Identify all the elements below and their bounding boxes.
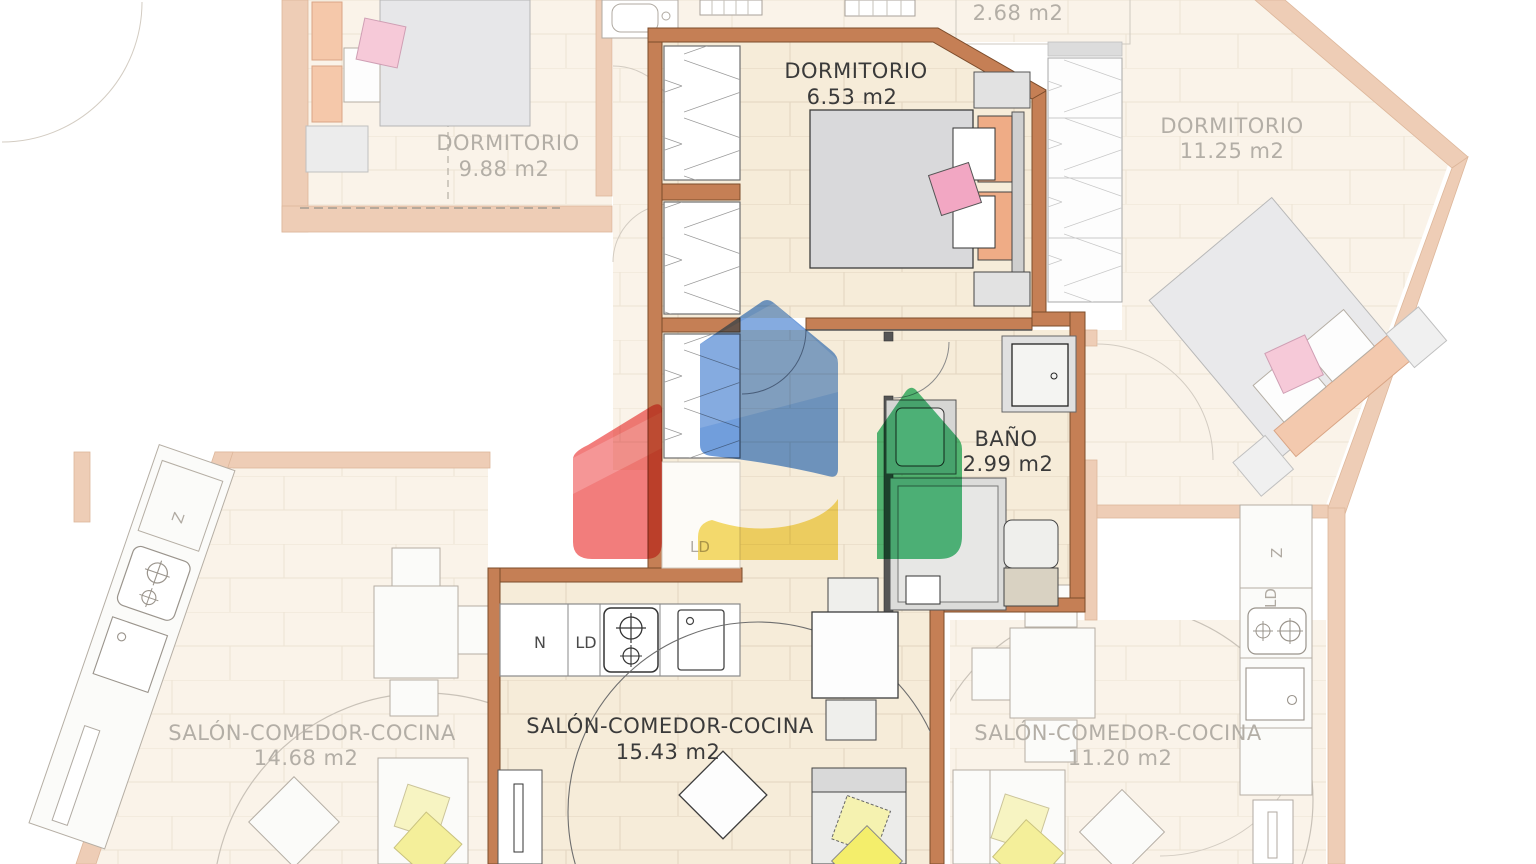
room-label-living-center: SALÓN-COMEDOR-COCINA xyxy=(526,713,814,738)
floorplan-drawing: Z DORMITORIO 9.88 m2 SALÓN-COMEDOR-COCIN… xyxy=(0,0,1536,864)
room-label-bedroom-center: DORMITORIO xyxy=(784,59,927,83)
washer-label-center: LD xyxy=(575,633,596,652)
storage-area-label: 2.68 m2 xyxy=(973,1,1064,25)
tv-cabinet-center xyxy=(498,770,542,864)
room-area-bedroom-right: 11.25 m2 xyxy=(1180,139,1285,163)
room-label-bathroom: BAÑO xyxy=(974,425,1037,451)
room-area-living-left: 14.68 m2 xyxy=(254,746,359,770)
sofa-center xyxy=(812,768,906,864)
floorplan-canvas: Z DORMITORIO 9.88 m2 SALÓN-COMEDOR-COCIN… xyxy=(0,0,1536,864)
washer-label-right: LD xyxy=(1262,588,1280,608)
room-area-living-right: 11.20 m2 xyxy=(1068,746,1173,770)
sofa-right xyxy=(953,770,1065,864)
room-area-bedroom-center: 6.53 m2 xyxy=(807,85,898,109)
door-arc-icon xyxy=(2,2,142,142)
room-label-living-right: SALÓN-COMEDOR-COCINA xyxy=(974,720,1262,745)
bench xyxy=(974,272,1030,306)
room-area-living-center: 15.43 m2 xyxy=(616,740,721,764)
room-area-bathroom: 2.99 m2 xyxy=(963,452,1054,476)
sink-icon xyxy=(1246,668,1304,720)
pink-cushion xyxy=(356,18,406,68)
toilet xyxy=(1004,520,1058,606)
cabinet xyxy=(1002,336,1076,412)
sink-icon xyxy=(678,610,724,670)
closet-column-right xyxy=(1048,58,1122,302)
fridge-label-center: N xyxy=(534,633,546,652)
room-label-bedroom-left: DORMITORIO xyxy=(436,131,579,155)
fridge-label-right: Z xyxy=(1268,548,1286,558)
cooktop-icon xyxy=(604,608,658,672)
cooktop-icon xyxy=(1248,608,1306,654)
sofa-left xyxy=(378,758,468,864)
nightstand xyxy=(306,126,368,172)
room-label-living-left: SALÓN-COMEDOR-COCINA xyxy=(168,720,456,745)
room-label-bedroom-right: DORMITORIO xyxy=(1160,114,1303,138)
kitchen-center: N LD xyxy=(500,604,740,676)
room-area-bedroom-left: 9.88 m2 xyxy=(459,157,550,181)
nightstand xyxy=(974,72,1030,108)
